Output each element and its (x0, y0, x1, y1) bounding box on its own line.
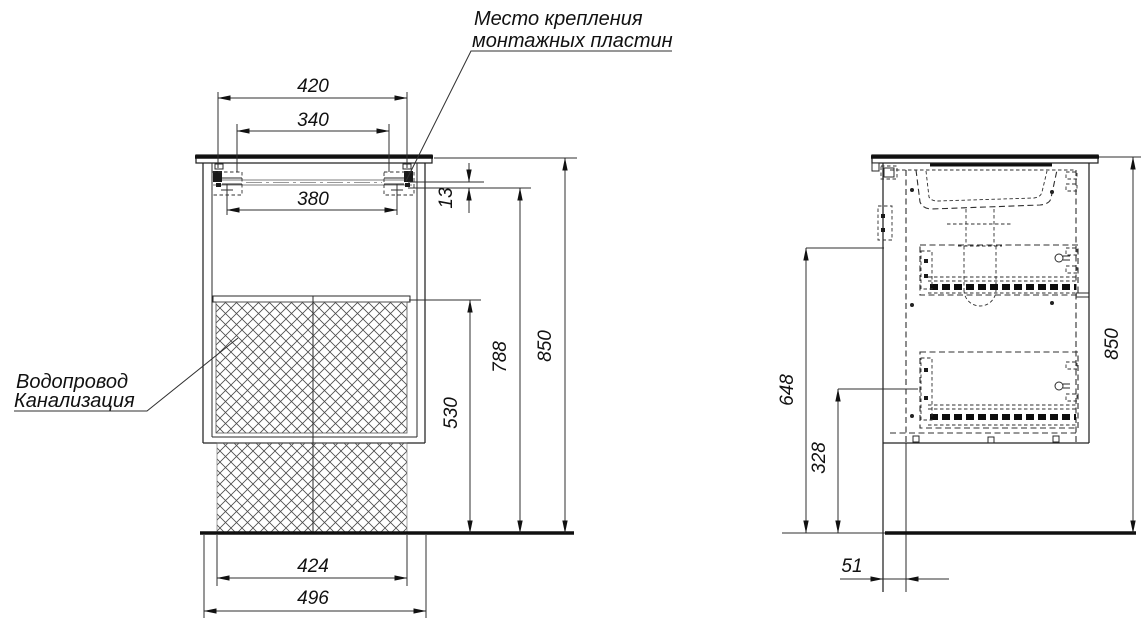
plate-bar-left (222, 178, 242, 184)
dim-label-13: 13 (436, 187, 457, 209)
technical-drawing-page: 420 340 380 13 530 788 (0, 0, 1144, 620)
mounting-leader-line (406, 51, 672, 181)
plate-hole-cross-right (391, 184, 403, 196)
dim-label-850-side: 850 (1102, 328, 1123, 360)
side-view: 648 328 850 51 (777, 155, 1141, 592)
bottom-clip-1 (913, 436, 919, 442)
annotation-mounting-plates: Место крепления монтажных пластин (406, 8, 673, 181)
mounting-label-line1: Место крепления (474, 8, 643, 30)
dim-328: 328 (809, 389, 918, 533)
drawer-front-gap (1076, 293, 1089, 297)
plate-nub-right (405, 183, 410, 187)
plate-body-left (213, 171, 222, 182)
dim-label-420: 420 (297, 76, 329, 97)
back-bracket-dashed (878, 206, 892, 240)
washbasin-hidden (916, 170, 1057, 209)
dim-label-788: 788 (490, 341, 511, 373)
dim-648: 648 (777, 248, 885, 533)
dim-850-side: 850 (1099, 157, 1141, 533)
dim-label-648: 648 (777, 374, 798, 406)
plate-bar-right (384, 178, 404, 184)
drain-siphon-hidden (947, 209, 1013, 306)
dim-380: 380 (227, 189, 397, 215)
bottom-clip-2 (988, 437, 994, 443)
dim-label-340: 340 (297, 110, 329, 131)
dim-424: 424 (217, 535, 407, 586)
hatch-top-band (213, 296, 410, 302)
dim-788: 788 (490, 188, 520, 533)
cam-screw-icon (1055, 254, 1063, 262)
side-countertop-lip (872, 163, 879, 171)
back-plate-top (884, 168, 894, 177)
dim-label-328: 328 (809, 442, 830, 474)
back-bracket-screw-2 (881, 228, 885, 232)
dim-label-380: 380 (297, 189, 329, 210)
lower-drawer-hidden (920, 352, 1078, 428)
cam-screw-icon-2 (1055, 382, 1063, 390)
plate-clip-left (215, 164, 223, 169)
dim-label-51: 51 (841, 556, 862, 577)
plate-hole-cross-left (221, 184, 233, 196)
vanity-installation-drawing: 420 340 380 13 530 788 (0, 0, 1144, 620)
back-bracket-screw-1 (881, 214, 885, 218)
hatch-area-upper (216, 302, 407, 433)
upper-drawer-hidden (920, 245, 1078, 295)
hatch-area-lower (217, 443, 407, 533)
dim-530: 530 (409, 300, 481, 533)
dim-label-530: 530 (441, 397, 462, 429)
dim-13: 13 (408, 163, 531, 213)
dim-label-850-front: 850 (535, 330, 556, 362)
bottom-clip-3 (1053, 436, 1059, 442)
plumbing-label-line2: Канализация (14, 390, 135, 412)
annotation-plumbing: Водопровод Канализация (14, 338, 238, 412)
front-view: 420 340 380 13 530 788 (14, 8, 673, 618)
plate-nub-left (216, 183, 221, 187)
dim-label-496: 496 (297, 588, 329, 609)
dim-label-424: 424 (297, 556, 329, 577)
mounting-label-line2: монтажных пластин (472, 30, 673, 52)
dim-51: 51 (840, 556, 949, 579)
